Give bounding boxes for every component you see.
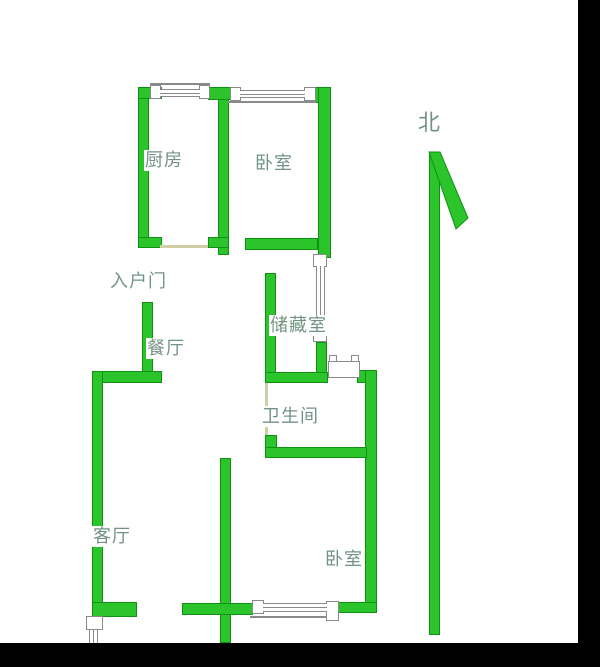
bathroom-bottom-wall <box>265 447 367 458</box>
living-bottom-foot <box>92 602 137 617</box>
bedroom2-window-glass <box>263 603 327 612</box>
living-bottom-wall <box>182 603 253 615</box>
entry-door-label: 入户门 <box>109 271 168 292</box>
bedroom2-window-outer-line <box>250 616 337 618</box>
bedroom1-right-wall <box>318 87 331 258</box>
entry-door-frame <box>86 616 103 630</box>
kitchen-bottom-right-foot <box>208 237 229 248</box>
kitchen-bedroom-divider-wall <box>218 87 229 255</box>
north-arrow-line <box>429 152 440 635</box>
kitchen-label: 厨房 <box>144 150 184 171</box>
bedroom1-bottom-wall <box>245 238 318 250</box>
bedroom2-window-tab-right <box>326 601 339 621</box>
kitchen-window-glass <box>160 89 200 97</box>
bathroom-label: 卫生间 <box>261 406 320 427</box>
bathroom-bedroom2-right-wall <box>365 370 377 613</box>
kitchen-bottom-left-foot <box>138 237 162 248</box>
north-label: 北 <box>417 110 441 135</box>
entry-wall <box>142 302 153 372</box>
bathroom-door-frame <box>328 361 360 378</box>
kitchen-window-tab-right <box>199 85 210 99</box>
living-bedroom-divider-wall <box>220 458 231 643</box>
storage-label: 储藏室 <box>269 315 328 336</box>
entry-door-glass <box>89 630 98 643</box>
bottom-black-bar <box>0 643 600 667</box>
bedroom1-window-outer-line <box>228 101 316 103</box>
bathroom-top-wall <box>265 372 328 383</box>
right-black-bar <box>578 0 600 667</box>
bedroom1-window-glass <box>240 90 305 98</box>
living-label: 客厅 <box>92 526 132 547</box>
bedroom2-label: 卧室 <box>324 549 364 570</box>
bedroom1-window-tab-right <box>304 87 316 101</box>
kitchen-door-line <box>160 245 208 248</box>
dining-label: 餐厅 <box>146 338 186 359</box>
bedroom1-label: 卧室 <box>254 153 294 174</box>
floor-plan: 厨房卧室北入户门储藏室餐厅卫生间客厅卧室 <box>0 0 600 667</box>
storage-right-wall-lower <box>316 342 327 374</box>
living-left-wall <box>92 371 103 623</box>
